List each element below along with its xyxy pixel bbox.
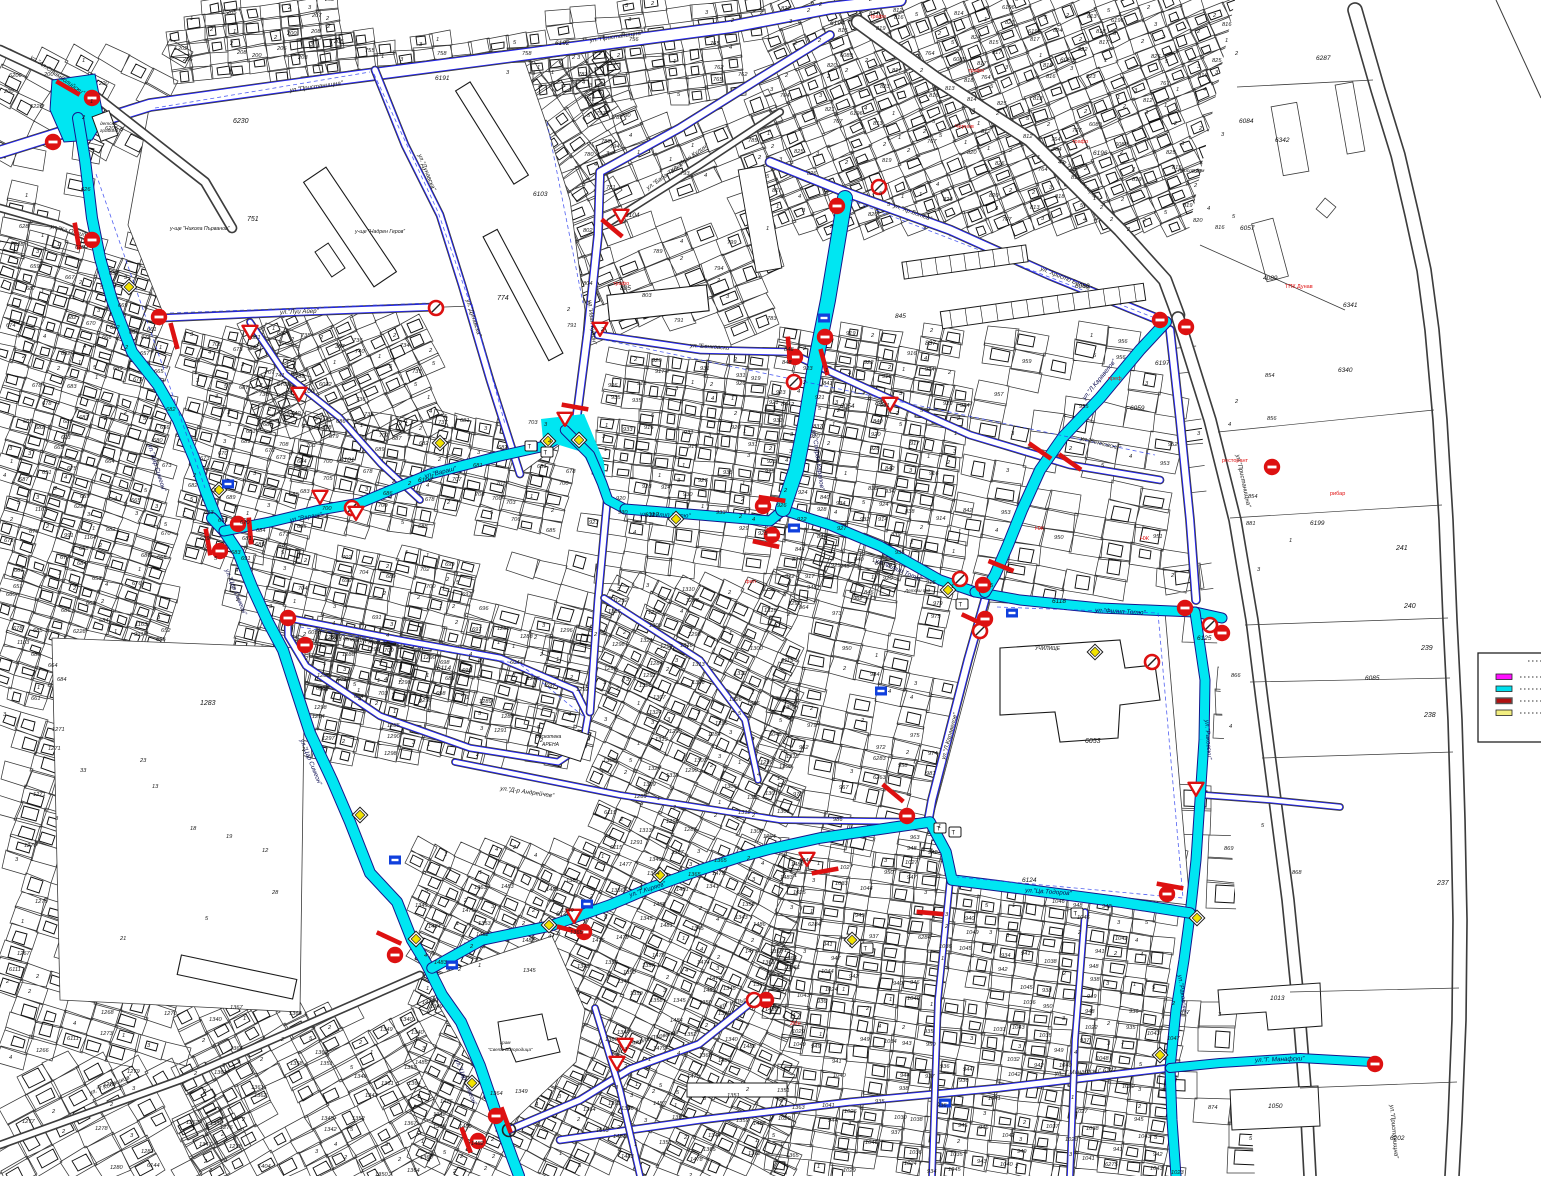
svg-text:6118: 6118 [1052,598,1066,605]
svg-text:1350: 1350 [699,1000,712,1006]
svg-text:1: 1 [82,58,85,64]
svg-text:1364: 1364 [407,1168,420,1174]
svg-text:387: 387 [335,344,345,350]
svg-text:813: 813 [945,86,955,92]
svg-text:33: 33 [80,768,87,774]
svg-text:1: 1 [849,943,852,949]
svg-text:962: 962 [799,745,809,751]
svg-text:6114: 6114 [437,665,451,672]
svg-text:4: 4 [73,1021,76,1027]
svg-text:874: 874 [1208,1105,1218,1111]
svg-text:699: 699 [342,578,352,584]
svg-text:1313: 1313 [692,662,705,668]
svg-text:941: 941 [832,1059,842,1065]
svg-text:1357: 1357 [642,963,655,969]
svg-text:869: 869 [1224,846,1234,852]
svg-text:1324: 1324 [649,710,662,716]
svg-text:1479: 1479 [653,1046,666,1052]
svg-text:1027: 1027 [1075,1109,1088,1115]
svg-text:1364: 1364 [583,1107,596,1113]
svg-text:673: 673 [233,347,243,353]
svg-text:678: 678 [75,245,85,251]
svg-text:1: 1 [436,37,439,43]
svg-text:824: 824 [1053,28,1063,34]
svg-text:689: 689 [200,536,210,542]
svg-text:953: 953 [1001,510,1011,516]
svg-text:662: 662 [23,419,33,425]
svg-text:670: 670 [277,382,287,388]
svg-text:1: 1 [431,474,434,480]
svg-text:1: 1 [766,226,769,232]
svg-text:1488: 1488 [653,902,666,908]
svg-text:1: 1 [90,99,93,105]
svg-text:929: 929 [739,526,749,532]
svg-text:1345: 1345 [321,1116,334,1122]
svg-text:1037: 1037 [1046,1124,1059,1130]
svg-text:1303: 1303 [694,758,707,764]
svg-text:1: 1 [333,360,336,366]
svg-text:238: 238 [1423,712,1436,719]
svg-text:4: 4 [700,947,703,953]
svg-text:762: 762 [738,72,748,78]
svg-text:1: 1 [604,447,607,453]
svg-text:765: 765 [710,41,720,47]
svg-text:951: 951 [1153,534,1163,540]
svg-text:6050: 6050 [308,630,321,636]
svg-text:948: 948 [1089,964,1099,970]
svg-text:758: 758 [437,51,447,57]
svg-text:4: 4 [1228,422,1231,428]
svg-text:626: 626 [81,187,91,193]
svg-text:651: 651 [42,470,52,476]
svg-text:932: 932 [860,517,870,523]
svg-text:1: 1 [635,1082,638,1088]
svg-text:802: 802 [583,228,593,234]
svg-text:1358: 1358 [290,1061,303,1067]
svg-text:674: 674 [6,323,16,329]
svg-text:920: 920 [883,576,893,582]
svg-text:6196: 6196 [1093,150,1108,157]
svg-text:1034: 1034 [884,1039,897,1045]
svg-text:1: 1 [138,567,141,573]
svg-text:817: 817 [772,188,782,194]
svg-text:755: 755 [365,48,375,54]
svg-text:1297: 1297 [322,736,335,742]
svg-text:936: 936 [959,1078,969,1084]
svg-text:923: 923 [767,459,777,465]
svg-text:1024: 1024 [825,987,838,993]
svg-text:1483: 1483 [501,884,514,890]
svg-text:812: 812 [1143,98,1153,104]
svg-text:1: 1 [421,1139,424,1145]
svg-text:1043: 1043 [1012,1025,1025,1031]
svg-text:697: 697 [472,627,482,633]
svg-text:926: 926 [736,381,746,387]
svg-text:825: 825 [794,149,804,155]
svg-text:1308: 1308 [603,758,616,764]
svg-text:1: 1 [951,584,954,590]
svg-text:933: 933 [623,427,633,433]
svg-text:1352: 1352 [352,1116,365,1122]
svg-text:942: 942 [1102,904,1112,910]
svg-text:816: 816 [929,93,939,99]
svg-text:703: 703 [306,443,316,449]
svg-text:4: 4 [711,396,714,402]
svg-text:673: 673 [29,529,39,535]
svg-text:1483: 1483 [703,988,716,994]
svg-text:1: 1 [697,710,700,716]
svg-text:4: 4 [548,934,551,940]
svg-text:1: 1 [691,380,694,386]
svg-text:6197: 6197 [1155,360,1170,367]
svg-text:1: 1 [25,193,28,199]
svg-text:1: 1 [370,1050,373,1056]
svg-text:1045: 1045 [1020,985,1033,991]
svg-text:814: 814 [954,11,964,17]
svg-text:974: 974 [928,751,938,757]
svg-text:738: 738 [322,425,332,431]
svg-text:842: 842 [885,466,895,472]
svg-text:1363: 1363 [474,885,487,891]
svg-text:1301: 1301 [765,791,778,797]
svg-text:700: 700 [426,584,436,590]
svg-text:1: 1 [777,776,780,782]
svg-text:4: 4 [43,334,46,340]
svg-text:1478: 1478 [422,1000,435,1006]
svg-text:13: 13 [152,784,159,790]
svg-text:820: 820 [827,63,837,69]
svg-text:1: 1 [601,854,604,860]
svg-text:947: 947 [831,956,841,962]
svg-text:700: 700 [323,459,333,465]
svg-text:1: 1 [360,423,363,429]
svg-text:689: 689 [445,676,455,682]
svg-text:1: 1 [1037,155,1040,161]
svg-text:4: 4 [677,1051,680,1057]
svg-text:921: 921 [815,395,825,401]
svg-text:6341: 6341 [1343,302,1358,309]
svg-text:1: 1 [512,644,515,650]
svg-text:1361: 1361 [608,1101,621,1107]
svg-text:793: 793 [680,171,690,177]
svg-text:673: 673 [61,435,71,441]
svg-text:200: 200 [286,31,297,37]
svg-text:1483: 1483 [522,938,535,944]
svg-text:1026: 1026 [1065,1137,1078,1143]
svg-text:948: 948 [907,846,917,852]
svg-text:922: 922 [785,574,795,580]
svg-text:1: 1 [92,526,95,532]
svg-text:774: 774 [497,295,509,302]
svg-text:1343: 1343 [365,1093,378,1099]
svg-text:915: 915 [637,381,647,387]
svg-text:1: 1 [427,742,430,748]
svg-text:821: 821 [825,107,835,113]
svg-text:1036: 1036 [939,944,952,950]
svg-text:916: 916 [882,374,892,380]
svg-text:943: 943 [855,913,865,919]
svg-text:683: 683 [231,550,241,556]
svg-text:6342: 6342 [1275,137,1290,144]
svg-text:6111: 6111 [67,1036,79,1042]
svg-text:767: 767 [1160,81,1170,87]
svg-text:200: 200 [98,81,109,87]
svg-text:1284: 1284 [650,661,663,667]
svg-text:1360: 1360 [605,1037,618,1043]
svg-text:1353: 1353 [596,1128,609,1134]
svg-text:206: 206 [276,46,287,52]
svg-text:1043: 1043 [1150,1166,1163,1172]
svg-text:T: T [544,451,548,457]
svg-text:941: 941 [1095,949,1105,955]
svg-text:816: 816 [1198,73,1208,79]
svg-text:1313: 1313 [639,828,652,834]
svg-text:1298: 1298 [669,729,682,735]
svg-text:1: 1 [637,741,640,747]
svg-text:1276: 1276 [103,1082,116,1088]
svg-text:1: 1 [718,800,721,806]
svg-text:705: 705 [323,476,333,482]
svg-text:6085: 6085 [1365,675,1380,682]
svg-text:1: 1 [797,965,800,971]
svg-text:1044: 1044 [821,969,834,975]
svg-text:1: 1 [426,673,429,679]
svg-text:трафо: трафо [613,281,629,287]
svg-text:817: 817 [977,61,987,67]
svg-text:1: 1 [122,1033,125,1039]
svg-text:1: 1 [530,494,533,500]
svg-text:6230: 6230 [233,118,249,125]
svg-text:917: 917 [655,369,665,375]
svg-text:822: 822 [781,6,791,12]
svg-text:1290: 1290 [685,768,698,774]
svg-text:1291: 1291 [494,728,507,734]
svg-text:979: 979 [807,723,817,729]
svg-text:791: 791 [585,97,595,103]
svg-text:948: 948 [1073,903,1083,909]
svg-text:23: 23 [139,758,147,764]
svg-text:824: 824 [971,35,981,41]
svg-text:670: 670 [218,451,228,457]
svg-text:1: 1 [952,549,955,555]
svg-text:685: 685 [297,524,307,530]
svg-text:707: 707 [265,370,275,376]
svg-text:673: 673 [162,463,172,469]
svg-text:1: 1 [669,157,672,163]
svg-text:1300: 1300 [750,646,763,652]
svg-text:6115: 6115 [610,845,623,851]
svg-text:4: 4 [685,968,688,974]
svg-text:686: 686 [336,419,346,425]
svg-text:1: 1 [559,1151,562,1157]
svg-text:812: 812 [893,8,903,14]
svg-text:1: 1 [958,529,961,535]
svg-text:981: 981 [926,771,936,777]
svg-text:797: 797 [596,111,606,117]
svg-text:931: 931 [748,442,758,448]
svg-text:1349: 1349 [649,857,662,863]
svg-text:1: 1 [888,564,891,570]
svg-text:819: 819 [882,158,892,164]
svg-text:1359: 1359 [736,1118,749,1124]
svg-text:652: 652 [161,628,171,634]
svg-text:1: 1 [810,909,813,915]
svg-text:820: 820 [1193,218,1203,224]
svg-text:848: 848 [875,561,885,567]
svg-text:1326: 1326 [747,701,760,707]
svg-text:1312: 1312 [738,810,751,816]
svg-text:707: 707 [379,433,389,439]
svg-text:767: 767 [1002,217,1012,223]
svg-text:1279: 1279 [35,899,48,905]
svg-text:698: 698 [440,660,450,666]
svg-text:1353: 1353 [478,921,491,927]
svg-text:1342: 1342 [433,1112,446,1118]
svg-text:764: 764 [1052,147,1062,153]
svg-text:1164: 1164 [84,535,96,541]
svg-text:1: 1 [872,558,875,564]
svg-text:1: 1 [95,375,98,381]
svg-text:816: 816 [1046,74,1056,80]
svg-text:936: 936 [940,1064,950,1070]
svg-text:4: 4 [1203,87,1206,93]
svg-text:682: 682 [419,441,429,447]
svg-text:1: 1 [497,640,500,646]
svg-text:1486: 1486 [753,922,766,928]
svg-text:931: 931 [736,373,746,379]
svg-text:202: 202 [324,0,335,3]
svg-text:1: 1 [427,395,430,401]
svg-text:1349: 1349 [561,908,574,914]
svg-text:1351: 1351 [727,1093,740,1099]
svg-text:1295: 1295 [367,647,380,653]
svg-text:741: 741 [275,373,285,379]
svg-text:934: 934 [1001,953,1011,959]
svg-text:1: 1 [183,508,186,514]
svg-text:1291: 1291 [630,840,643,846]
svg-text:4: 4 [114,496,117,502]
svg-text:823: 823 [880,84,890,90]
svg-text:1050: 1050 [1268,1103,1283,1110]
svg-text:848: 848 [784,347,794,353]
svg-text:1: 1 [381,54,384,60]
svg-text:957: 957 [994,392,1004,398]
svg-text:917: 917 [910,441,920,447]
svg-text:1040: 1040 [1059,1063,1072,1069]
svg-text:684: 684 [57,677,67,683]
svg-text:1: 1 [842,987,845,993]
svg-text:1: 1 [323,661,326,667]
svg-text:679: 679 [329,434,339,440]
svg-text:4: 4 [1207,206,1210,212]
svg-text:1: 1 [605,423,608,429]
svg-text:1325: 1325 [639,683,652,689]
svg-text:6089: 6089 [1089,122,1102,128]
svg-text:826: 826 [943,197,953,203]
svg-text:1292: 1292 [660,644,673,650]
svg-text:1487: 1487 [653,1101,666,1107]
svg-text:920: 920 [616,496,626,502]
svg-text:1288: 1288 [520,634,533,640]
svg-text:6089: 6089 [953,57,966,63]
svg-text:973: 973 [832,611,842,617]
svg-text:1: 1 [1093,196,1096,202]
svg-text:1: 1 [1164,103,1167,109]
svg-text:4: 4 [424,953,427,959]
svg-text:1: 1 [701,504,704,510]
svg-text:1356: 1356 [611,888,624,894]
svg-text:825: 825 [1212,58,1222,64]
svg-text:1029: 1029 [843,1168,856,1174]
svg-text:6284: 6284 [808,922,821,928]
svg-text:1023: 1023 [1171,1170,1184,1176]
svg-text:1481: 1481 [613,1134,626,1140]
svg-text:1298: 1298 [688,632,701,638]
svg-text:1022: 1022 [1085,1025,1098,1031]
svg-text:967: 967 [839,785,849,791]
svg-text:826: 826 [995,161,1005,167]
svg-text:1: 1 [243,1016,246,1022]
svg-text:1345: 1345 [691,926,704,932]
svg-text:919: 919 [846,331,856,337]
svg-text:1: 1 [522,671,525,677]
svg-text:1: 1 [657,796,660,802]
svg-text:4: 4 [785,458,788,464]
svg-text:927: 927 [837,526,847,532]
svg-text:1: 1 [637,701,640,707]
svg-text:736: 736 [259,392,269,398]
svg-text:678: 678 [42,401,52,407]
svg-text:1483: 1483 [621,1154,634,1160]
svg-text:1: 1 [1090,333,1093,339]
svg-text:696: 696 [462,668,472,674]
svg-text:1: 1 [964,140,967,146]
svg-text:1296: 1296 [560,628,573,634]
svg-text:1: 1 [844,471,847,477]
svg-text:659: 659 [30,264,40,270]
svg-text:914: 914 [661,485,671,491]
svg-text:686: 686 [61,608,71,614]
svg-text:941: 941 [1021,951,1031,957]
svg-text:202: 202 [177,46,188,52]
svg-text:942: 942 [849,974,859,980]
svg-text:4: 4 [9,1055,12,1061]
svg-text:6059: 6059 [1130,405,1145,412]
svg-text:1364: 1364 [490,1091,503,1097]
svg-text:1: 1 [466,695,469,701]
svg-text:794: 794 [610,144,620,150]
svg-text:938: 938 [1042,988,1052,994]
svg-text:681: 681 [537,464,547,470]
svg-text:6202: 6202 [1390,1135,1405,1142]
svg-text:T: T [959,603,963,609]
svg-text:661: 661 [14,568,24,574]
svg-text:1351: 1351 [566,878,579,884]
svg-text:924: 924 [879,502,889,508]
svg-text:1347: 1347 [199,1142,212,1148]
svg-text:4: 4 [332,621,335,627]
svg-text:938: 938 [899,1086,909,1092]
svg-text:1: 1 [1071,1095,1074,1101]
svg-text:1344: 1344 [708,1133,721,1139]
svg-text:1351: 1351 [777,1088,790,1094]
svg-text:943: 943 [977,1159,987,1165]
svg-text:4: 4 [680,609,683,615]
svg-text:1278: 1278 [229,1144,242,1150]
svg-text:696: 696 [479,606,489,612]
svg-text:936: 936 [1129,1009,1139,1015]
svg-text:4: 4 [704,173,707,179]
